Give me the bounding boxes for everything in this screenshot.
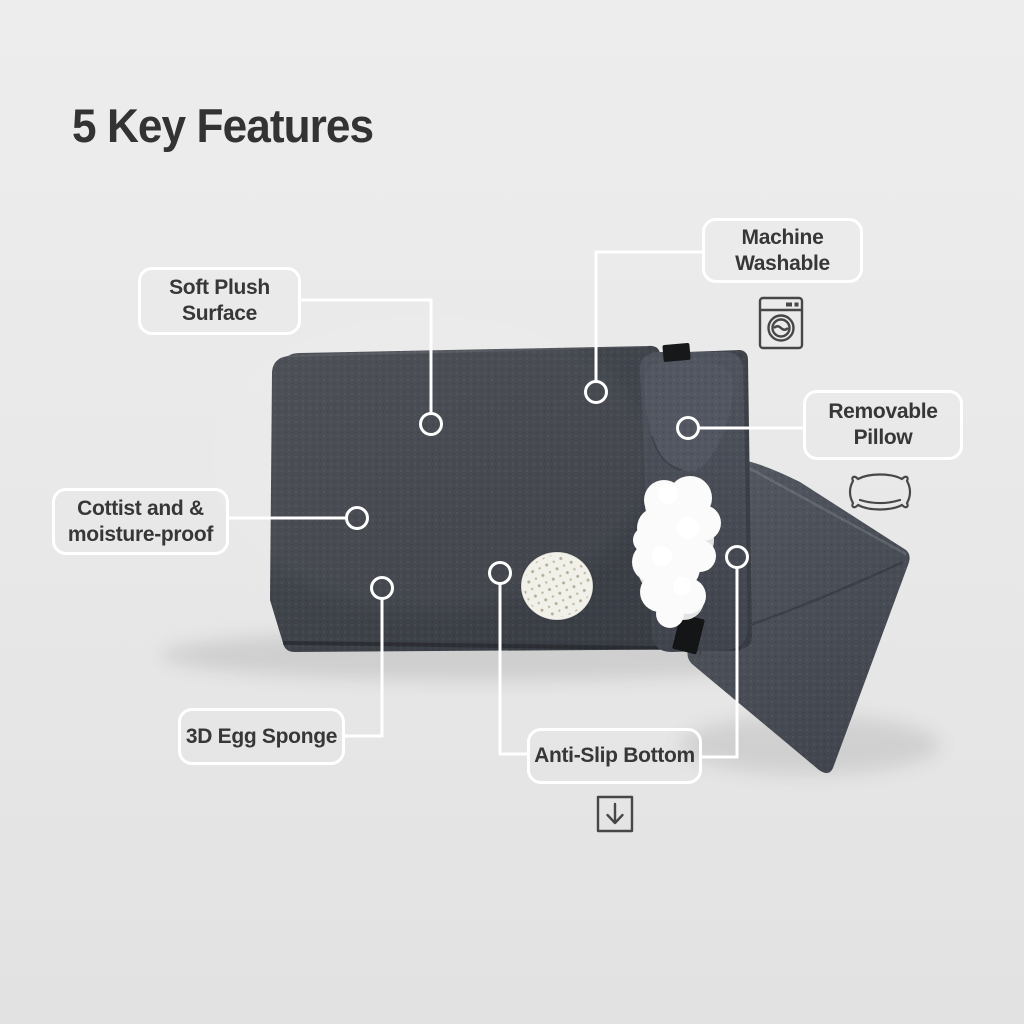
- callout-label: Pillow: [854, 425, 913, 451]
- page-title: 5 Key Features: [72, 98, 373, 153]
- connector-anti-slip-right: [702, 547, 748, 758]
- callout-label: Cottist and &: [77, 496, 204, 522]
- callout-label: Surface: [182, 301, 257, 327]
- down-arrow-icon: [596, 795, 634, 833]
- callout-anti-slip-bottom: Anti-Slip Bottom: [527, 728, 702, 784]
- connector-moisture-proof: [228, 508, 368, 529]
- connector-anti-slip-left: [490, 563, 528, 755]
- callout-egg-sponge: 3D Egg Sponge: [178, 708, 345, 765]
- washing-machine-icon: [757, 295, 805, 351]
- callout-label: Washable: [735, 251, 830, 277]
- callout-machine-washable: Machine Washable: [702, 218, 863, 283]
- connector-egg-sponge: [345, 578, 393, 737]
- connector-machine-washable: [586, 252, 703, 403]
- callout-label: Soft Plush: [169, 275, 270, 301]
- callout-label: moisture-proof: [68, 522, 213, 548]
- pillow-icon: [846, 470, 914, 514]
- connector-removable-pillow: [678, 418, 804, 439]
- callout-removable-pillow: Removable Pillow: [803, 390, 963, 460]
- connector-soft-plush: [300, 300, 442, 435]
- feature-infographic: 5 Key Features Soft Plush Surface Machin…: [0, 0, 1024, 1024]
- callout-label: 3D Egg Sponge: [186, 724, 337, 750]
- callout-soft-plush-surface: Soft Plush Surface: [138, 267, 301, 335]
- callout-label: Anti-Slip Bottom: [534, 743, 695, 769]
- callout-label: Removable: [828, 399, 937, 425]
- callout-moisture-proof: Cottist and & moisture-proof: [52, 488, 229, 555]
- callout-label: Machine: [742, 225, 824, 251]
